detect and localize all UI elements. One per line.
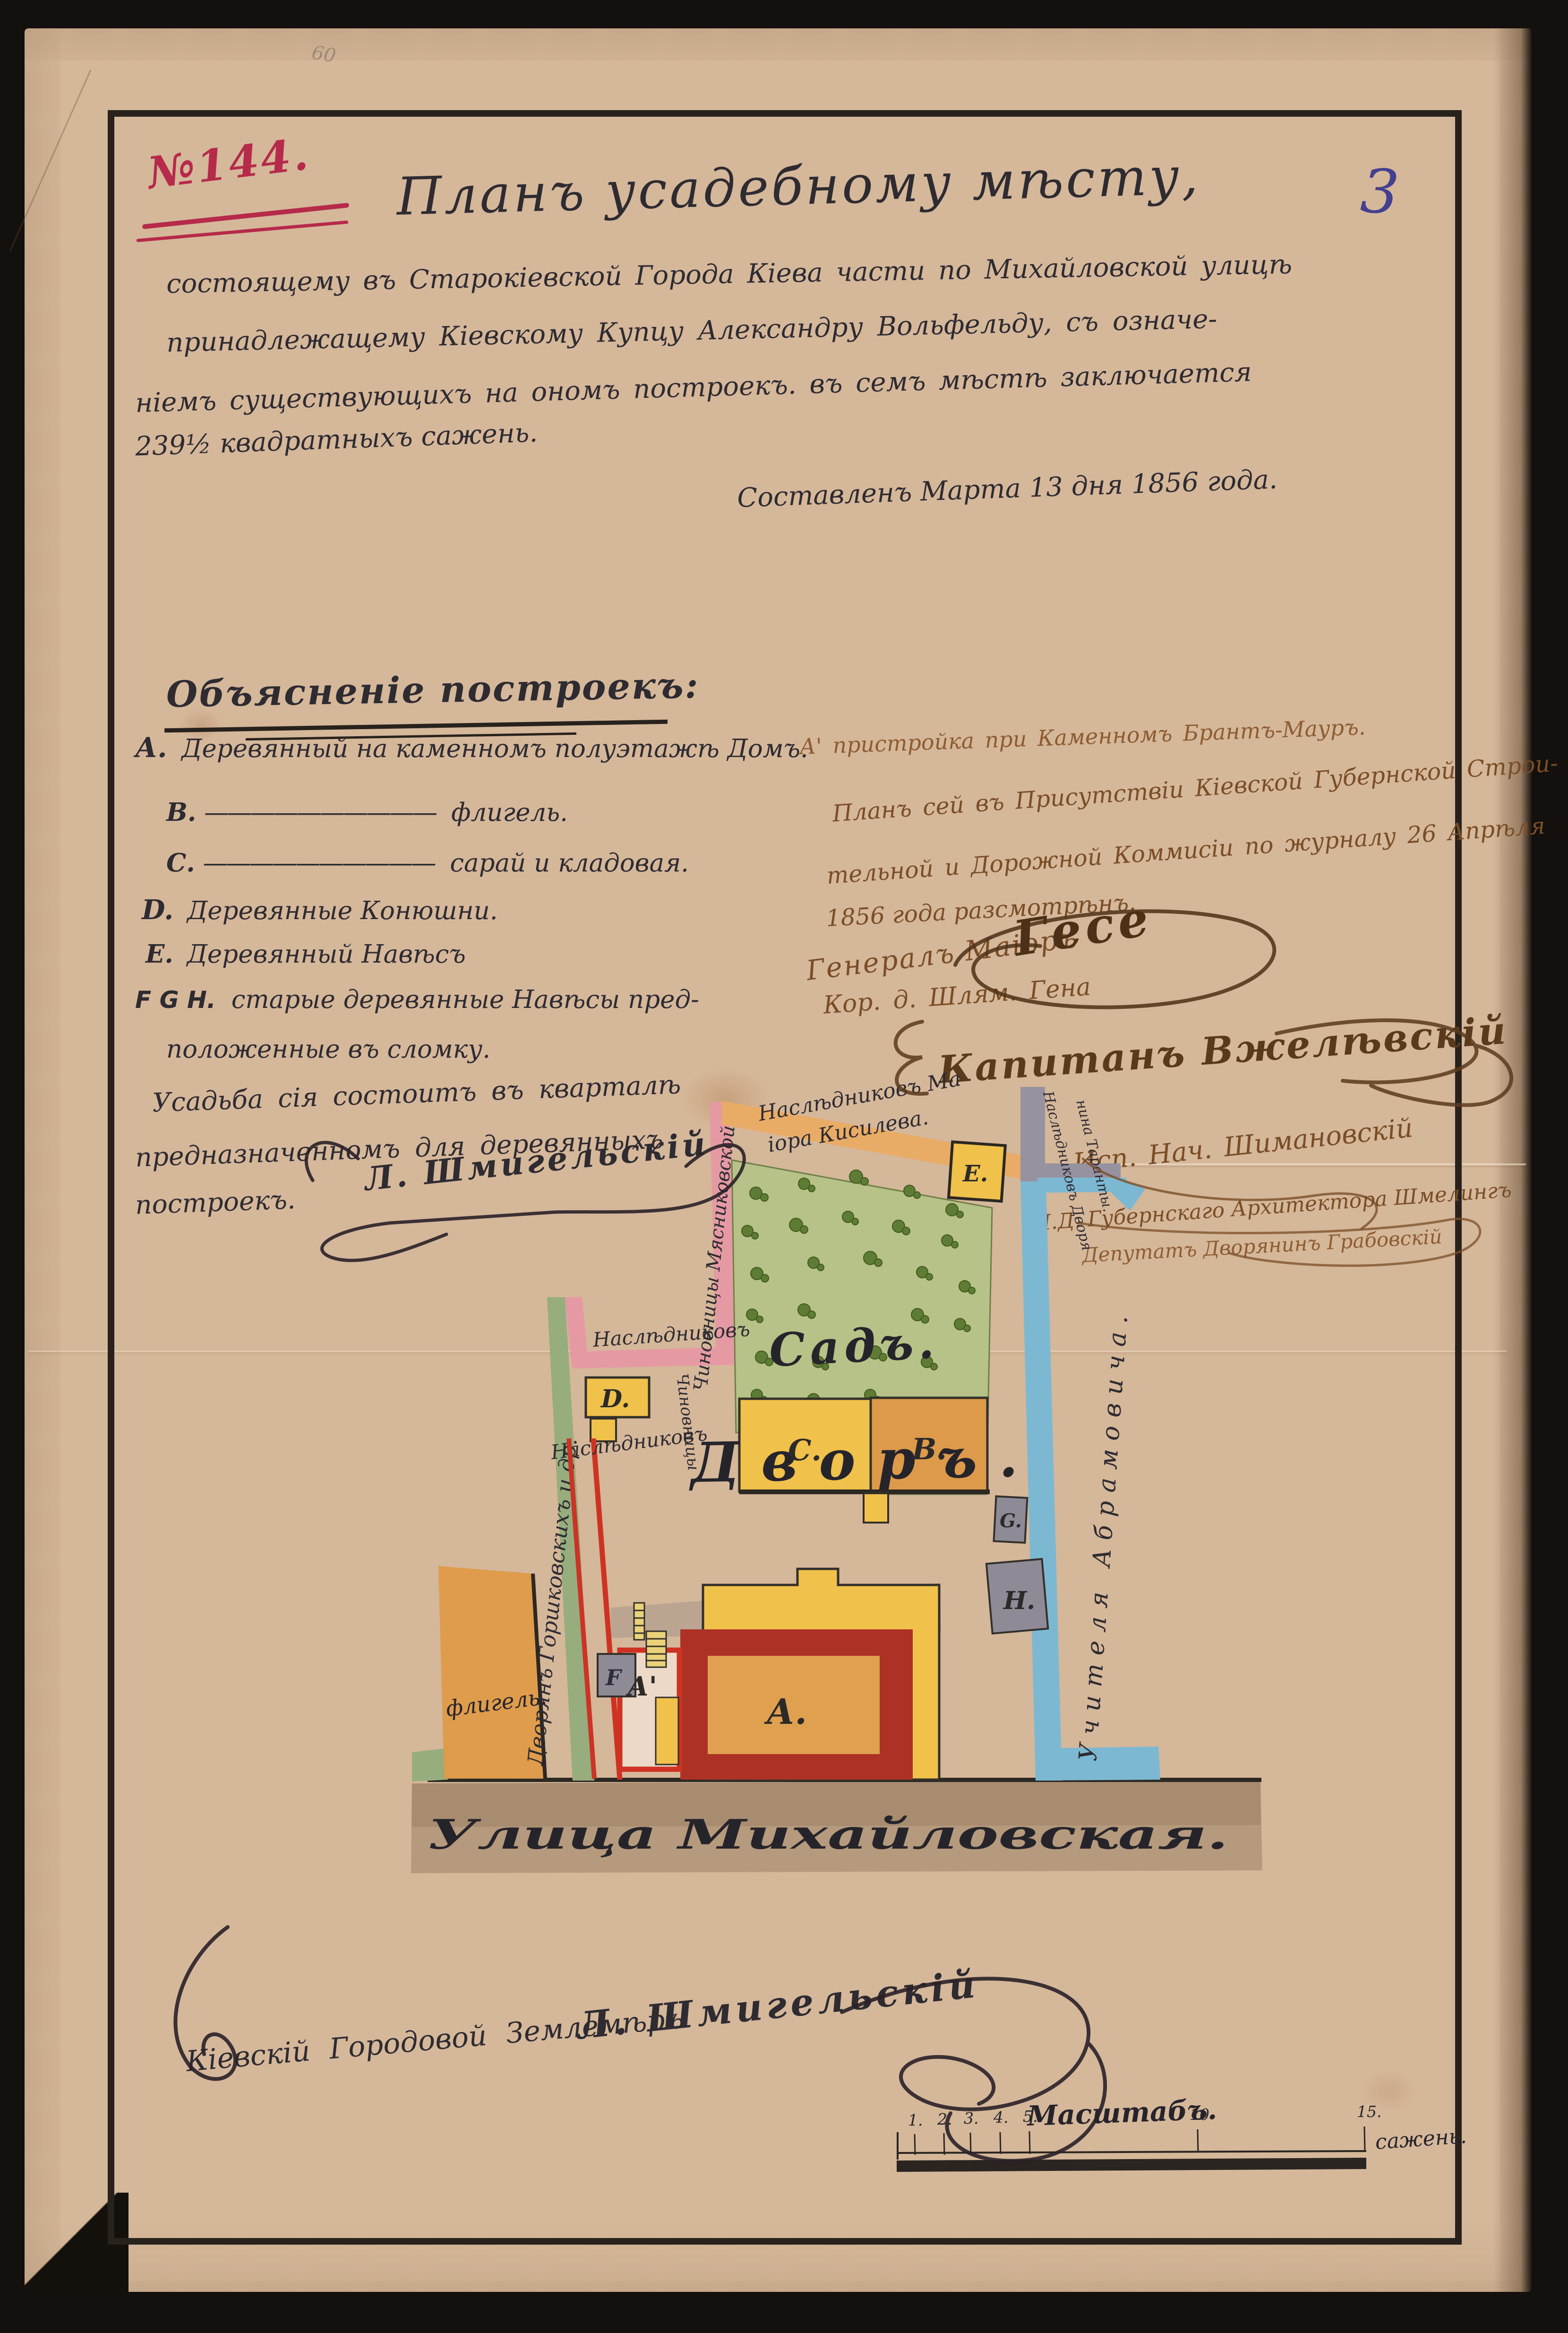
tick-15: 15. [1357, 2102, 1381, 2121]
street-label: Улица Михайловская. [428, 1811, 1228, 1859]
legend-key-b: В. [166, 798, 196, 827]
building-a-label: А. [764, 1692, 807, 1732]
legend-key-e: Е. [146, 939, 173, 969]
legend-text-b: флигель. [451, 798, 568, 827]
tick-10: 10 [1190, 2105, 1209, 2124]
legend-note-3: построекъ. [135, 1184, 296, 1220]
building-d-label: D. [600, 1385, 630, 1413]
tick-1: 1. [908, 2111, 923, 2129]
scale-bar-unit: сажень. [1374, 2124, 1467, 2154]
scale-bar: Масштабъ. 1. 2. 3. 4. 5. 10 15. сажень. [865, 2079, 1488, 2212]
neighbor-right-blue-label: Учителя Абрамовича. [1074, 1306, 1134, 1762]
pencil-mark: 60 [310, 42, 337, 67]
legend-key-d: D. [142, 894, 173, 926]
legend-text-c: сарай и кладовая. [450, 849, 689, 878]
tick-2: 2. [937, 2110, 952, 2128]
legend-item-fgh: F G H. старые деревянные Навѣсы пред- [135, 985, 699, 1014]
yard-label: Дворъ. [688, 1425, 1040, 1495]
legend-key-c: С. [166, 848, 195, 878]
legend-item-b: В. —————————— флигель. [166, 798, 568, 827]
building-c-label: С. [788, 1433, 822, 1467]
legend-item-d: D. Деревянные Конюшни. [142, 894, 498, 926]
garden-label: Садъ. [768, 1315, 940, 1377]
legend-key-fgh: F G H. [135, 986, 216, 1014]
building-g-label: G. [1000, 1510, 1022, 1532]
legend-key-a: А. [135, 732, 167, 764]
building-a-prime-label: А' [625, 1671, 657, 1702]
legend-text-fgh: старые деревянные Навѣсы пред- [231, 985, 699, 1014]
legend-text-a: Деревянный на каменномъ полуэтажѣ Домъ. [181, 734, 808, 763]
tick-5: 5. [1023, 2107, 1038, 2126]
building-e-label: Е. [962, 1161, 988, 1187]
legend-item-fgh-2: положенные въ сломку. [166, 1035, 490, 1064]
plot-plan: Садъ. Дворъ. Улица Михайловская. А. А' В… [387, 1073, 1299, 1914]
page-number: 3 [1359, 156, 1401, 228]
paper-edge-shadow [1493, 28, 1533, 2292]
tick-4: 4. [993, 2108, 1009, 2126]
building-h-label: Н. [1002, 1586, 1035, 1615]
tick-3: 3. [964, 2109, 979, 2127]
legend-text-d: Деревянные Конюшни. [187, 896, 497, 925]
building-a [680, 1569, 939, 1780]
legend-item-a: А. Деревянный на каменномъ полуэтажѣ Дом… [135, 732, 808, 764]
building-f-label: F [605, 1665, 623, 1690]
legend-dash-b: —————————— [204, 798, 436, 827]
legend-item-c: С. —————————— сарай и кладовая. [166, 848, 689, 878]
legend-dash-c: —————————— [203, 849, 435, 878]
legend-item-e: Е. Деревянный Навѣсъ [146, 939, 466, 969]
scanned-document: 60 №144. 3 Планъ усадебному мѣсту, состо… [0, 0, 1568, 2333]
legend-text-e: Деревянный Навѣсъ [187, 940, 466, 969]
scale-bar-title: Масштабъ. [1026, 2093, 1217, 2132]
scale-bar-ruler [897, 2126, 1366, 2172]
building-b-label: В. [911, 1432, 947, 1466]
